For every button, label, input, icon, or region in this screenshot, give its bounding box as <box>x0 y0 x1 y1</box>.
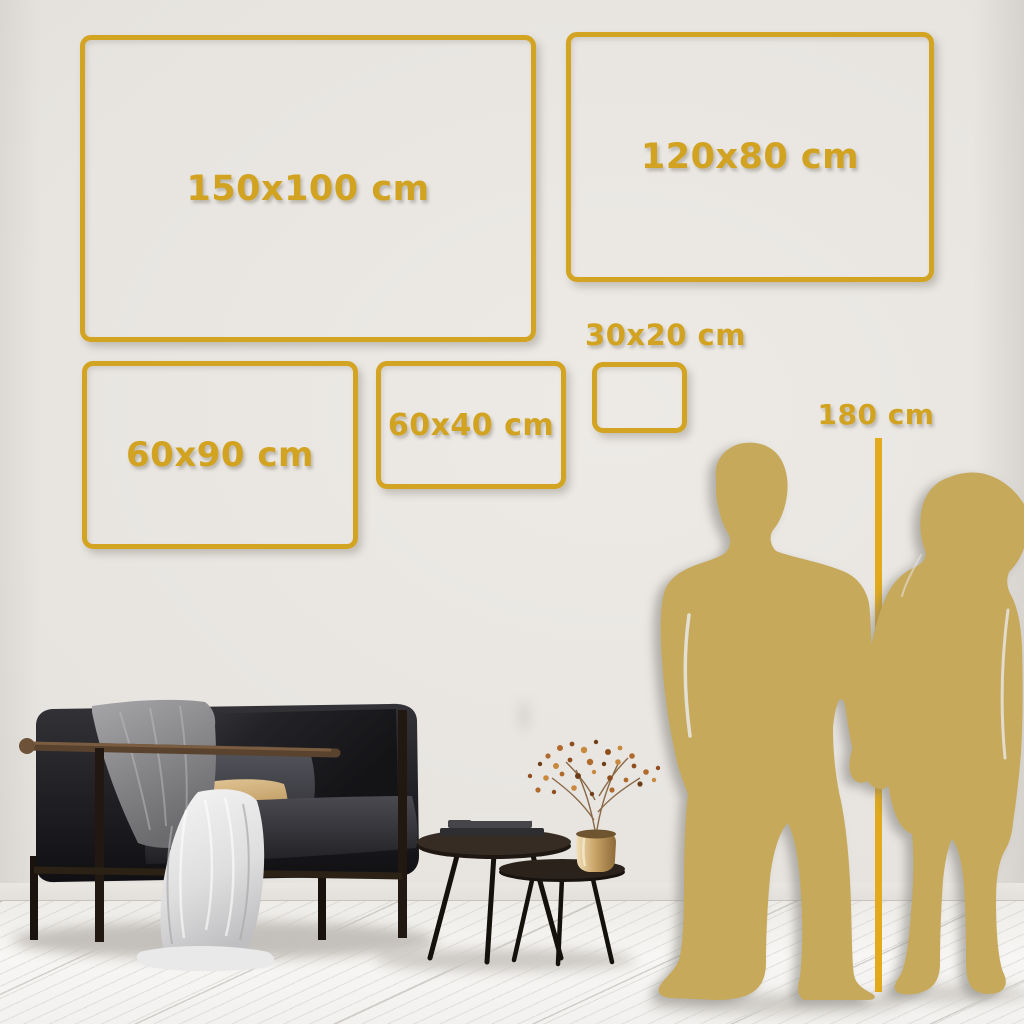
size-label-30x20: 30x20 cm <box>573 318 758 352</box>
size-label-150x100: 150x100 cm <box>186 169 429 209</box>
size-frame-60x90: 60x90 cm <box>82 361 358 549</box>
size-label-120x80: 120x80 cm <box>641 137 859 177</box>
size-label-60x90: 60x90 cm <box>126 435 314 475</box>
size-guide-scene: 150x100 cm 120x80 cm 60x90 cm 60x40 cm 3… <box>0 0 1024 1024</box>
size-label-60x40: 60x40 cm <box>388 408 554 443</box>
baseboard <box>0 883 1024 901</box>
size-frame-60x40: 60x40 cm <box>376 361 566 489</box>
size-frame-150x100: 150x100 cm <box>80 35 536 342</box>
height-marker-label: 180 cm <box>796 398 956 431</box>
wood-floor <box>0 901 1024 1024</box>
size-frame-120x80: 120x80 cm <box>566 32 934 282</box>
size-frame-30x20 <box>592 362 687 433</box>
